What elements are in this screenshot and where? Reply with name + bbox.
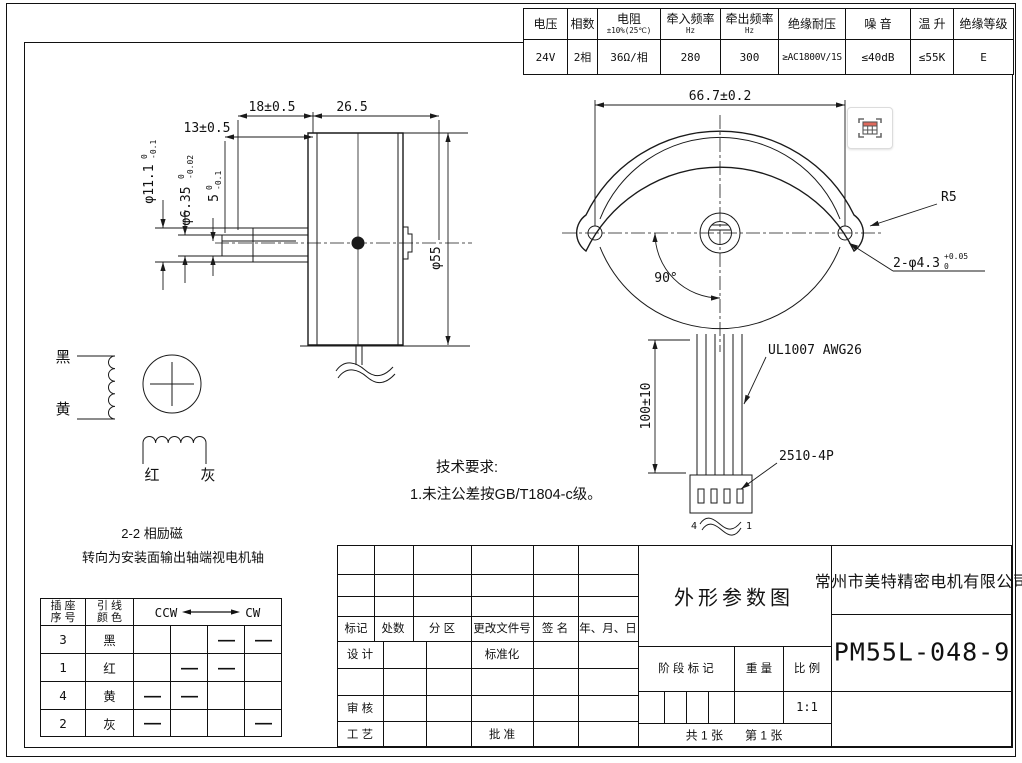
wire-yellow-label: 黄	[55, 401, 70, 418]
approve-label: 批 准	[489, 726, 515, 742]
part-number: PM55L-048-9	[834, 638, 1011, 667]
line	[664, 691, 665, 723]
line	[831, 614, 1013, 615]
standardization-label: 标准化	[485, 646, 520, 662]
svg-text:-0.1: -0.1	[214, 171, 223, 190]
svg-text:φ6.35: φ6.35	[179, 186, 194, 225]
rotor-cross	[150, 362, 194, 406]
audit-label: 审 核	[347, 700, 373, 716]
spec-value-pullin: 280	[661, 40, 721, 74]
company-name: 常州市美特精密电机有限公司	[815, 568, 1022, 592]
dimension-arrows	[160, 113, 450, 345]
scale-label: 比 例	[794, 660, 820, 676]
connector-break-squiggle	[700, 518, 741, 535]
drawing-sheet: 18±0.5 26.5 13±0.5 φ11.1 0 -0.1 φ6.35 0 …	[0, 0, 1022, 763]
spec-value-insclass: E	[954, 40, 1013, 74]
conn-row-no: 2	[41, 710, 86, 736]
conn-step: —	[245, 626, 281, 654]
line	[338, 616, 638, 617]
process-label: 工 艺	[347, 726, 373, 742]
dim-dia55-label: φ55	[429, 246, 444, 269]
spec-value-temprise: ≤55K	[911, 40, 954, 74]
tech-req-title: 技术要求:	[410, 455, 602, 482]
conn-step: —	[171, 682, 208, 710]
direction-caption: 转向为安装面输出轴端视电机轴	[82, 550, 264, 565]
pin-1-label: 1	[746, 521, 752, 532]
rev-header-mark: 标记	[345, 620, 368, 636]
spec-value-phases: 2相	[568, 40, 598, 74]
dim-5-label: 5 0 -0.1	[205, 171, 223, 202]
dim-667-label: 66.7±0.2	[689, 89, 752, 104]
spec-value-pullout: 300	[721, 40, 779, 74]
conn-step: —	[208, 626, 245, 654]
conn-step	[171, 626, 208, 654]
conn-step	[245, 682, 281, 710]
wire-gray-label: 灰	[200, 467, 215, 484]
line	[338, 596, 638, 597]
line	[413, 546, 414, 641]
line	[708, 691, 709, 723]
rev-header-signature: 签 名	[542, 620, 568, 636]
conn-row-no: 1	[41, 654, 86, 682]
rev-header-zone: 分 区	[429, 620, 455, 636]
conn-step	[134, 654, 171, 682]
title-block: 标记 处数 分 区 更改文件号 签 名 年、月、日 设 计 标准化 审 核 工 …	[337, 545, 1012, 747]
line	[783, 646, 784, 723]
rev-header-date: 年、月、日	[579, 620, 637, 636]
table-capture-icon	[857, 116, 883, 140]
connector-label: 2510-4P	[779, 449, 834, 464]
conn-step: —	[171, 654, 208, 682]
drawing-title: 外形参数图	[674, 582, 794, 611]
spec-value-voltage: 24V	[524, 40, 568, 74]
cw-label: CW	[245, 605, 260, 620]
svg-text:5: 5	[207, 194, 222, 202]
table-capture-button[interactable]	[847, 107, 893, 149]
conn-step	[208, 710, 245, 736]
weight-label: 重 量	[746, 660, 772, 676]
conn-row-color: 黄	[86, 682, 134, 710]
line	[338, 574, 638, 575]
spec-header-resistance: 电阻±10%(25℃)	[598, 9, 661, 40]
line	[383, 641, 384, 748]
dim-dia11-label: φ11.1 0 -0.1	[140, 140, 158, 204]
sheet-info: 共 1 张 第 1 张	[686, 727, 783, 744]
holes-tol-upper: +0.05	[944, 252, 968, 261]
holes-label: 2-φ4.3	[893, 256, 940, 271]
dim-dia635-label: φ6.35 0 -0.02	[177, 155, 195, 226]
shaft-bushing	[253, 228, 308, 262]
spec-value-noise: ≤40dB	[846, 40, 911, 74]
dim-13-label: 13±0.5	[184, 121, 231, 136]
stage-mark-label: 阶 段 标 记	[658, 660, 714, 676]
line	[734, 646, 735, 723]
conn-header-leadcolor: 引 线颜 色	[86, 599, 134, 626]
tech-req-item: 1.未注公差按GB/T1804-c级。	[410, 482, 602, 509]
line	[426, 641, 427, 748]
coil-left	[108, 356, 115, 419]
svg-text:-0.02: -0.02	[186, 155, 195, 179]
conn-step: —	[208, 654, 245, 682]
angle-90-label: 90°	[654, 271, 677, 286]
conn-row-color: 红	[86, 654, 134, 682]
ccw-cw-arrow	[182, 608, 240, 616]
spec-table: 电压 相数 电阻±10%(25℃) 牵入频率Hz 牵出频率Hz 绝缘耐压 噪 音…	[523, 8, 1014, 75]
svg-text:0: 0	[140, 154, 149, 159]
coil-bottom	[143, 437, 206, 444]
dimension-arrows	[595, 102, 879, 489]
svg-text:100±10: 100±10	[639, 383, 654, 430]
line	[374, 546, 375, 641]
line	[638, 723, 831, 724]
line	[533, 546, 534, 748]
conn-step: —	[134, 682, 171, 710]
spec-header-pullout: 牵出频率Hz	[721, 9, 779, 40]
spec-header-voltage: 电压	[524, 9, 568, 40]
wire-spec-label: UL1007 AWG26	[768, 343, 862, 358]
conn-step: —	[134, 710, 171, 736]
break-squiggle	[336, 363, 395, 383]
conn-step	[245, 654, 281, 682]
lead-exit	[356, 345, 362, 365]
conn-row-no: 4	[41, 682, 86, 710]
technical-requirements: 技术要求: 1.未注公差按GB/T1804-c级。	[410, 455, 602, 509]
spec-header-noise: 噪 音	[846, 9, 911, 40]
spec-header-pullin: 牵入频率Hz	[661, 9, 721, 40]
rev-header-count: 处数	[382, 620, 405, 636]
holes-tol-lower: 0	[944, 262, 949, 271]
radius-r5-label: R5	[941, 190, 957, 205]
spec-header-dielectric: 绝缘耐压	[779, 9, 846, 40]
spec-header-insclass: 绝缘等级	[954, 9, 1013, 40]
line	[686, 691, 687, 723]
side-view-dimensions: 18±0.5 26.5 13±0.5 φ11.1 0 -0.1 φ6.35 0 …	[140, 100, 470, 346]
scale-value: 1:1	[796, 700, 818, 714]
spec-value-dielectric: ≥AC1800V/1S	[779, 40, 846, 74]
svg-text:φ55: φ55	[429, 246, 444, 269]
svg-text:0: 0	[177, 174, 186, 179]
conn-step	[134, 626, 171, 654]
ccw-label: CCW	[155, 605, 178, 620]
conn-row-no: 3	[41, 626, 86, 654]
conn-step: —	[245, 710, 281, 736]
dim-26-label: 26.5	[336, 100, 367, 115]
conn-header-socket: 插 座序 号	[41, 599, 86, 626]
connector-pins	[698, 489, 743, 503]
conn-header-direction: CCW CW	[134, 599, 281, 626]
sheet-count: 共 1 张	[686, 727, 723, 744]
spec-header-phases: 相数	[568, 9, 598, 40]
excitation-caption: 2-2 相励磁	[121, 526, 182, 541]
spec-value-resistance: 36Ω/相	[598, 40, 661, 74]
svg-text:-0.1: -0.1	[149, 140, 158, 159]
wire-black-label: 黑	[55, 349, 70, 366]
dim-100-label: 100±10	[639, 383, 654, 430]
wire-red-label: 红	[144, 467, 159, 484]
svg-text:φ11.1: φ11.1	[142, 164, 157, 203]
dim-18-label: 18±0.5	[249, 100, 296, 115]
conn-step	[171, 710, 208, 736]
lead-wires	[697, 334, 742, 475]
sheet-number: 第 1 张	[745, 727, 782, 744]
phase-wiring-schematic: 黑 黄 红 灰 2-2 相励磁 转向为安装面输出轴端视电机轴	[55, 349, 264, 565]
line	[471, 546, 472, 748]
pin-4-label: 4	[691, 521, 697, 532]
line	[638, 546, 639, 748]
line	[831, 691, 1013, 692]
conn-row-color: 黑	[86, 626, 134, 654]
rev-header-docno: 更改文件号	[473, 620, 531, 636]
conn-row-color: 灰	[86, 710, 134, 736]
line	[578, 546, 579, 748]
connection-table: 插 座序 号 引 线颜 色 CCW CW 3 黑 — — 1 红 — — 4 黄…	[40, 598, 282, 737]
spec-header-temprise: 温 升	[911, 9, 954, 40]
design-label: 设 计	[347, 646, 373, 662]
svg-text:0: 0	[205, 185, 214, 190]
front-view-drawing	[562, 115, 882, 535]
conn-step	[208, 682, 245, 710]
motor-shaft	[222, 235, 308, 256]
